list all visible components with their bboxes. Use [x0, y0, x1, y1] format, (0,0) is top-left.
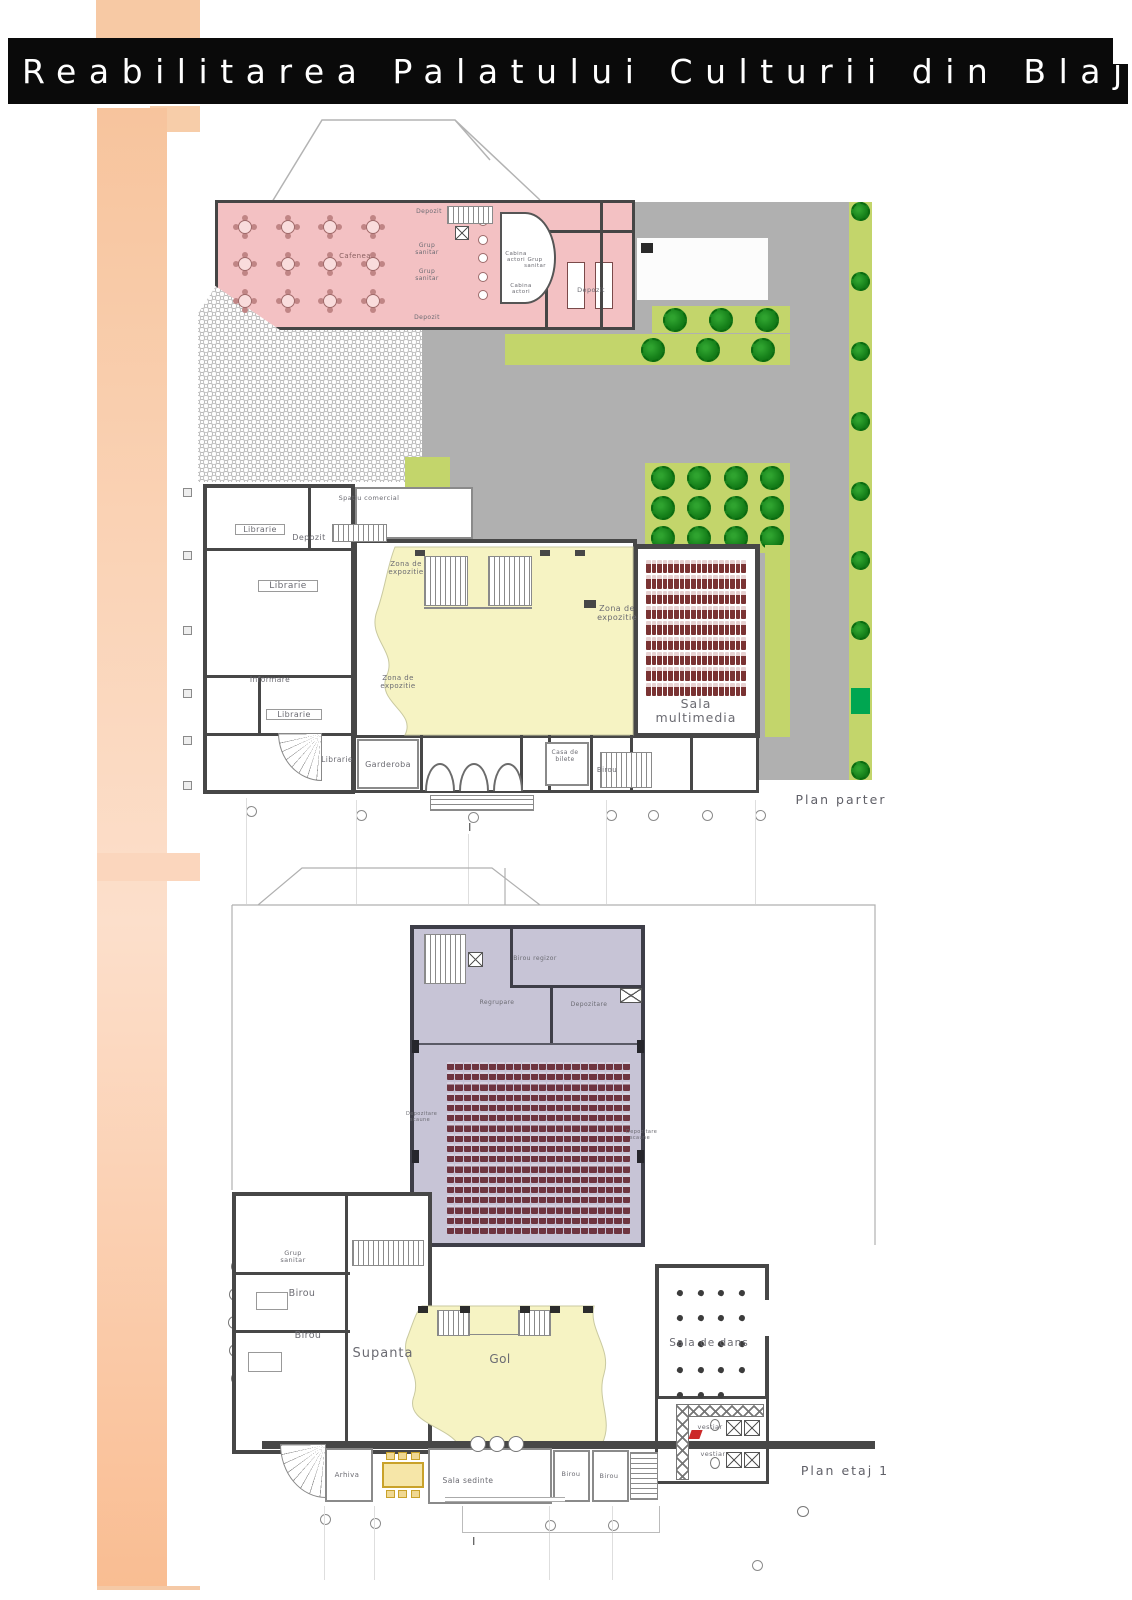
- stamp-mark: [797, 1506, 809, 1517]
- wall-block: [460, 1306, 470, 1313]
- grid-bubble: [648, 810, 659, 821]
- elevator-box: [455, 226, 469, 240]
- room-label: Casa de bilete: [548, 750, 582, 764]
- room-label: Librarie: [235, 524, 285, 535]
- room-label: Arhiva: [328, 1471, 366, 1479]
- room-label: Grup sanitar: [412, 243, 442, 257]
- stage-stair-left: [424, 556, 468, 606]
- wall: [590, 735, 593, 793]
- room-label: Grup sanitar: [276, 1250, 310, 1265]
- grid-bubble: [606, 810, 617, 821]
- room-label: Librarie: [258, 580, 318, 592]
- room-label: Supanta: [352, 1347, 414, 1362]
- dimension-marker: [183, 736, 192, 745]
- cafenea-tables: [224, 208, 394, 320]
- bright-green-patch: [851, 688, 870, 714]
- room-label: Zona de expozitie: [374, 674, 422, 690]
- room-label: Garderoba: [361, 760, 415, 769]
- hall-seats: [447, 1062, 630, 1234]
- elevator-box: [620, 988, 642, 1003]
- room-label: Grup sanitar: [412, 269, 442, 283]
- room-label: vestiar: [692, 1424, 728, 1431]
- room-label: Sala multimedia: [640, 697, 752, 726]
- balcony: [462, 1506, 660, 1533]
- wc-fixture: [710, 1457, 720, 1469]
- lawn-block: [645, 463, 790, 553]
- title-bar-notch: [1113, 38, 1132, 64]
- reference-line: [324, 1506, 325, 1580]
- roof-outline-parter: [225, 100, 625, 210]
- wall: [420, 735, 423, 793]
- page-title: Reabilitarea Palatului Culturii din Blaj: [8, 52, 1132, 91]
- wall: [203, 548, 353, 551]
- grid-bubble: [320, 1514, 331, 1525]
- lawn-strip-top: [652, 306, 790, 333]
- room-label: Depozit: [413, 209, 445, 216]
- room-label: Birou: [281, 1289, 323, 1300]
- stair-main: [332, 524, 387, 542]
- desk: [248, 1352, 282, 1372]
- room-label: Depozitare scaune: [626, 1130, 654, 1142]
- presentation-page: Reabilitarea Palatului Culturii din Blaj…: [0, 0, 1132, 1600]
- stair-hall: [424, 934, 466, 984]
- column: [508, 1436, 524, 1452]
- supanta-stair: [518, 1310, 551, 1336]
- room-label: Gol: [484, 1353, 516, 1367]
- room-label: Regrupare: [476, 1000, 518, 1007]
- stripe-bottom-line: [97, 1586, 200, 1590]
- wall-block: [575, 550, 585, 556]
- road-white: [637, 238, 768, 300]
- room-label: Sala de dans: [664, 1337, 754, 1349]
- stair-edge: [470, 1334, 518, 1335]
- wall-block: [418, 1306, 428, 1313]
- wall-block: [520, 1306, 530, 1313]
- stripe-main: [97, 108, 167, 1588]
- plan-caption: Plan parter: [793, 793, 889, 807]
- axis-label: I: [464, 822, 476, 835]
- column: [489, 1436, 505, 1452]
- wall-block: [415, 550, 425, 556]
- multimedia-seats: [646, 560, 746, 696]
- shower-box: [744, 1452, 760, 1468]
- locker-strip: [676, 1404, 689, 1480]
- grid-bubble: [755, 810, 766, 821]
- room-label: Grup sanitar: [521, 257, 549, 270]
- room-label: Birou: [592, 766, 622, 774]
- wall-block: [550, 1306, 560, 1313]
- spiral-stair: [280, 1444, 326, 1498]
- bar-stools: [478, 216, 488, 300]
- locker-strip: [676, 1404, 764, 1417]
- stripe-top-block: [96, 0, 200, 42]
- room-label: Sala sedinte: [438, 1477, 498, 1486]
- window-line: [445, 1497, 565, 1502]
- wall-block: [583, 1306, 593, 1313]
- wall: [414, 1043, 641, 1045]
- stripe-tab: [97, 853, 200, 881]
- pilaster: [412, 1040, 419, 1053]
- plan-caption: Plan etaj 1: [793, 1464, 897, 1478]
- grid-bubble: [702, 810, 713, 821]
- room-label: Informare: [246, 676, 294, 685]
- room-label: Librarie: [316, 756, 358, 765]
- grid-bubble: [370, 1518, 381, 1529]
- room-label: Depozit: [411, 315, 443, 322]
- wall: [600, 200, 603, 330]
- window-gap: [763, 1300, 771, 1336]
- pilaster: [637, 1150, 644, 1163]
- room-label: Birou: [594, 1473, 624, 1480]
- grid-bubble: [356, 810, 367, 821]
- room-label: Zona de expozitie: [382, 560, 430, 576]
- room-label: Zona de expozitie: [592, 604, 642, 622]
- dimension-marker: [183, 626, 192, 635]
- road-marker: [641, 243, 653, 253]
- room-label: Birou: [556, 1471, 586, 1478]
- dimension-marker: [183, 488, 192, 497]
- room-label: Depozitare scaune: [406, 1112, 434, 1124]
- wall: [345, 1192, 348, 1454]
- room-label: Spatiu comercial: [336, 495, 402, 502]
- room-label: Birou regizor: [510, 956, 560, 963]
- grid-bubble: [246, 806, 257, 817]
- room-label: Cabina actori: [503, 283, 539, 296]
- room-label: vestiar: [695, 1451, 731, 1458]
- meeting-chairs: [384, 1452, 422, 1498]
- wall: [550, 988, 553, 1043]
- depozit-room-right: [545, 230, 635, 330]
- title-bar: Reabilitarea Palatului Culturii din Blaj: [8, 38, 1128, 104]
- reference-line: [374, 1506, 375, 1580]
- elevator-box: [468, 952, 483, 967]
- supanta-stair: [437, 1310, 470, 1336]
- shower-box: [726, 1420, 742, 1436]
- room-label: Birou: [286, 1331, 330, 1342]
- room-label: Depozit: [570, 287, 612, 294]
- pilaster: [637, 1040, 644, 1053]
- dimension-marker: [183, 551, 192, 560]
- room-label: Depozitare: [566, 1002, 612, 1009]
- room-label: Librarie: [266, 709, 322, 720]
- axis-label: I: [468, 1536, 480, 1549]
- dimension-marker: [183, 689, 192, 698]
- room-label: Cafenea: [333, 252, 377, 260]
- stage-stair-right: [488, 556, 532, 606]
- stair-office: [352, 1240, 424, 1266]
- room-label: Depozit: [288, 533, 330, 542]
- entrance-steps: [430, 795, 534, 811]
- lawn-strip-mid: [505, 334, 790, 365]
- wall: [232, 1272, 350, 1275]
- column: [470, 1436, 486, 1452]
- wall-block: [540, 550, 550, 556]
- lawn-side: [765, 545, 790, 737]
- grid-bubble: [752, 1560, 763, 1571]
- shower-box: [744, 1420, 760, 1436]
- stair-southeast: [630, 1452, 658, 1500]
- gol-blob: [396, 1304, 626, 1450]
- stair-cafenea: [447, 206, 493, 224]
- dimension-marker: [183, 781, 192, 790]
- pilaster: [412, 1150, 419, 1163]
- stage-edge: [424, 607, 532, 609]
- wall: [690, 735, 693, 793]
